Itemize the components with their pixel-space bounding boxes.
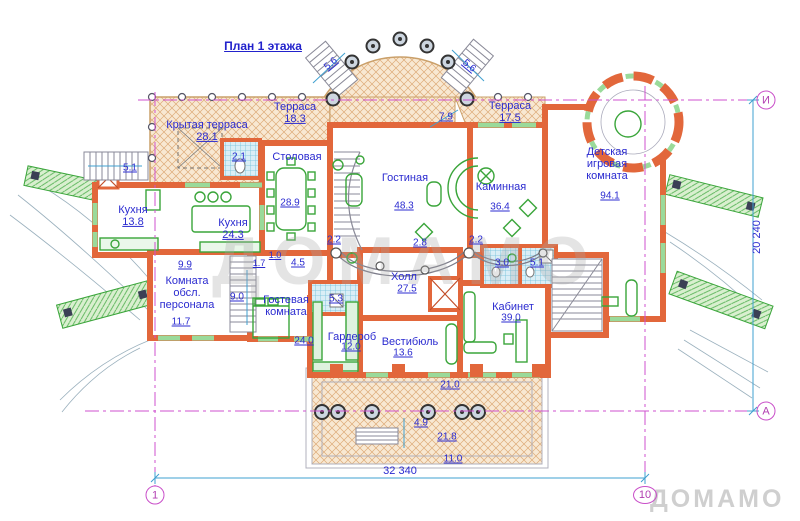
dim-corridor-guest: 4.5 [291,258,305,269]
dim-width-total: 32 340 [383,465,417,477]
dim-terrace-bottom-b: 21.8 [437,432,456,443]
dim-height-total: 20 240 [751,220,763,254]
right-balconies [665,175,773,398]
room-area-staff: 11.7 [172,317,191,328]
watermark-corner: ДОМАМО [650,485,784,514]
room-label-terrace-2: Терраса17.5 [489,100,531,124]
room-label-kitchen-1: Кухня13.8 [118,204,147,228]
room-label-terrace-1: Терраса18.3 [274,101,316,125]
room-area-wardrobe: 12.0 [341,342,360,353]
room-label-children: Детская игровая комната [574,146,640,182]
room-label-living: Гостиная [382,172,428,184]
axis-marker-bottom-right: А [757,402,776,421]
room-label-fireplace: Каминная [476,181,526,193]
room-area-vestibule: 13.6 [393,348,412,359]
dim-bath-hall-b: 5.1 [530,258,544,269]
dim-corridor-kitchen: 9.9 [178,260,192,271]
room-area-children: 94.1 [600,191,619,202]
dim-gallery-left: 2.2 [327,235,341,246]
room-label-vestibule: Вестибюль [382,336,439,348]
dim-corridor-small-a: 1.0 [269,250,282,260]
dim-gallery-mid: 2.8 [413,238,427,249]
page-title: План 1 этажа [224,39,302,53]
room-area-fireplace: 36.4 [490,202,509,213]
dim-stair-left: 5.1 [123,163,137,174]
floor-plan-page: ДОМАМО ДОМАМО План 1 этажа Терраса18.3 К… [0,0,800,521]
room-label-staff: Комната обсл. персонала [151,275,223,311]
room-label-study: Кабинет [492,301,534,313]
dim-stair-service: 9.0 [230,292,244,303]
dim-bath-guest: 5.3 [329,294,343,305]
room-label-covered-terrace: Крытая терраса28.1 [166,119,247,143]
room-label-guest: Гостевая комната [246,294,326,318]
dim-steps-bottom: 4.9 [414,418,428,429]
dim-terrace-bottom-c: 11.0 [444,454,463,465]
dim-bath-dining: 2.1 [232,152,246,163]
axis-marker-10: 10 [633,486,657,504]
dim-gallery-right: 2.2 [469,235,483,246]
room-label-dining: Столовая [272,151,321,163]
dim-terrace-bottom-a: 21.0 [440,380,459,391]
room-area-study: 39.0 [501,313,520,324]
dim-corridor-small-b: 1.7 [253,258,266,268]
dim-terrace-right: 7.9 [439,112,453,123]
room-label-hall: Холл [391,271,417,283]
room-area-guest: 24.0 [294,336,313,347]
room-area-hall: 27.5 [397,284,416,295]
dim-bath-hall-a: 3.0 [495,258,509,269]
axis-marker-top-right: И [757,91,776,110]
room-label-kitchen-2: Кухня24.3 [218,217,247,241]
axis-marker-1: 1 [146,486,165,505]
room-area-dining: 28.9 [280,198,299,209]
room-area-living: 48.3 [394,201,413,212]
